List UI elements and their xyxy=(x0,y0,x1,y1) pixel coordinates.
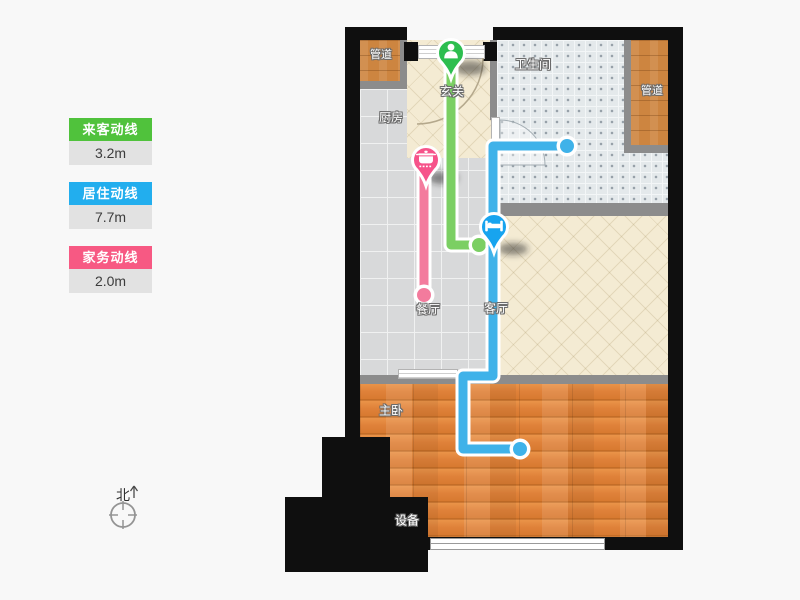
room-label-entrance: 玄关 xyxy=(440,83,464,100)
route-overlay xyxy=(0,0,800,600)
room-label-living: 客厅 xyxy=(484,300,508,317)
route-endpoint xyxy=(513,442,527,456)
room-label-bathroom: 卫生间 xyxy=(515,56,551,73)
room-label-duct-right: 管道 xyxy=(641,82,663,98)
room-label-kitchen: 厨房 xyxy=(379,109,403,126)
room-label-bedroom: 主卧 xyxy=(379,402,403,419)
room-label-duct-top-left: 管道 xyxy=(370,46,392,62)
room-label-equipment: 设备 xyxy=(395,512,419,529)
pin-shadow xyxy=(498,243,528,255)
room-label-dining: 餐厅 xyxy=(416,301,440,318)
living-route-line xyxy=(463,146,567,449)
north-arrow-icon xyxy=(131,486,138,498)
floorplan-viewer: 来客动线 3.2m 居住动线 7.7m 家务动线 2.0m xyxy=(0,0,800,600)
route-endpoint xyxy=(560,139,574,153)
compass-north-label: 北 xyxy=(116,485,130,505)
living-route-outline xyxy=(463,146,567,449)
route-endpoint xyxy=(472,238,486,252)
